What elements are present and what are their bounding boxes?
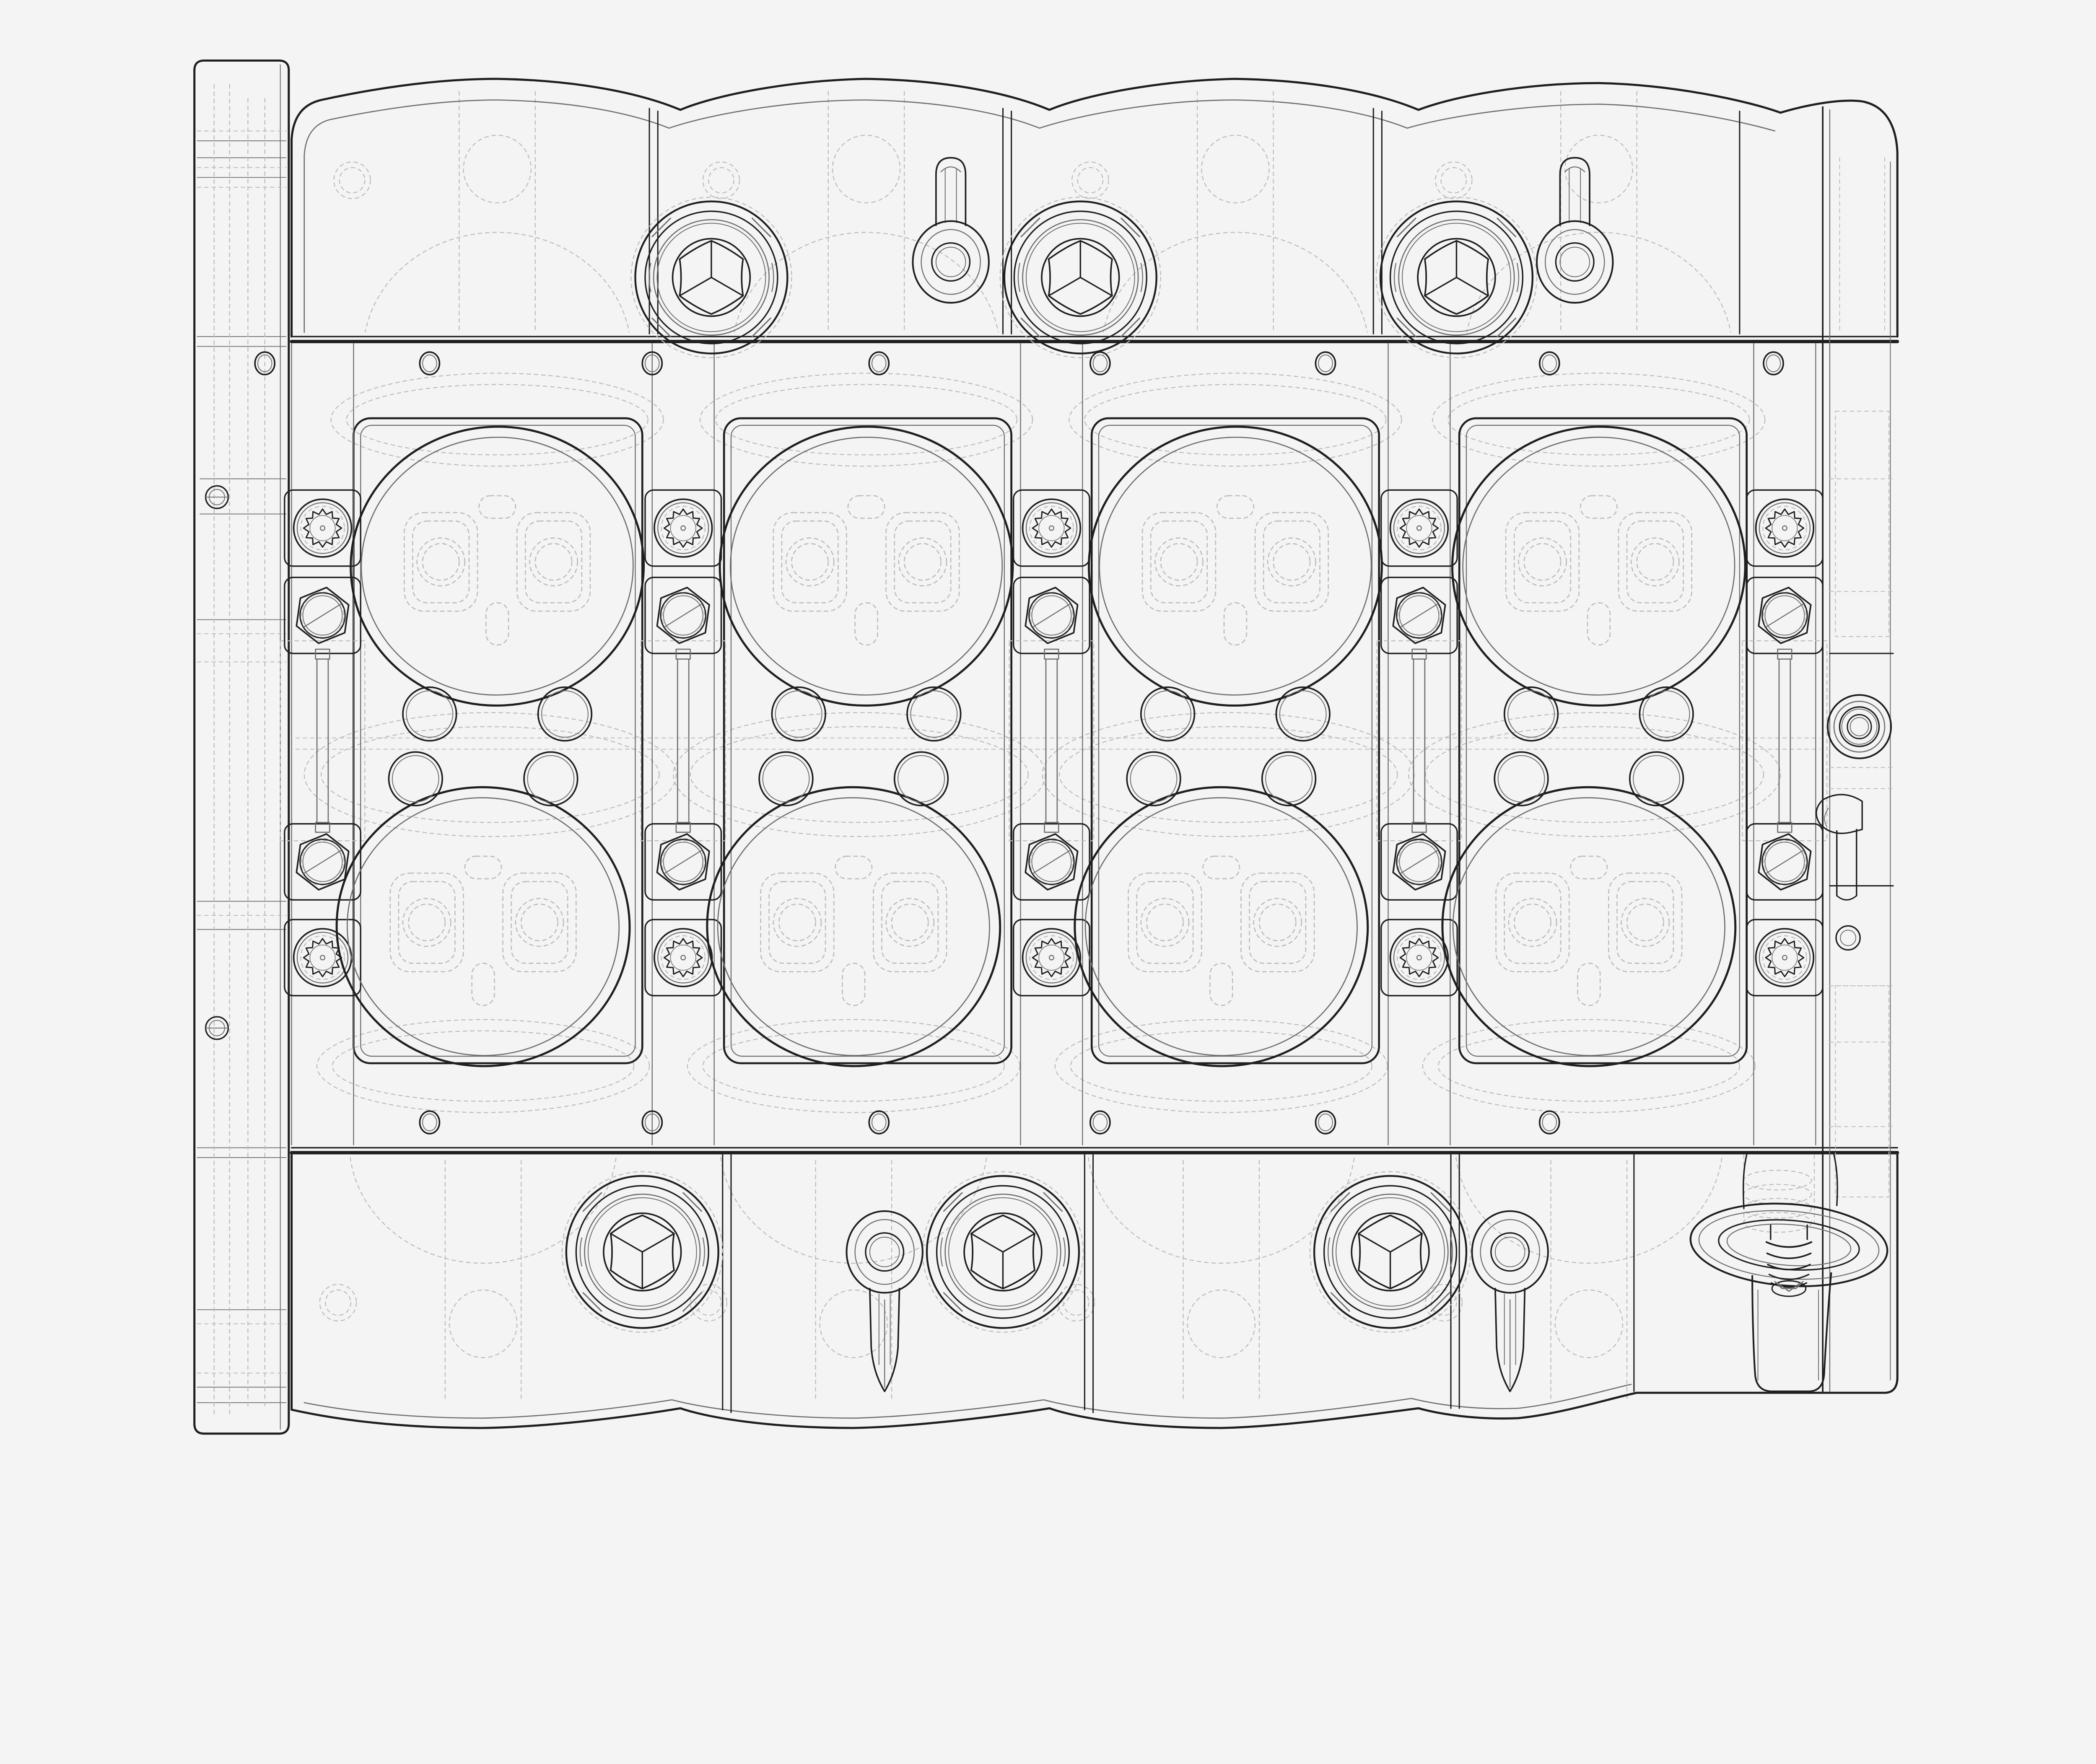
bearing-panel-inner [1099, 425, 1372, 1056]
bearing-bolt-12pt [654, 929, 712, 987]
bearing-bolt-hex [1391, 831, 1447, 893]
bearing-panel [1459, 418, 1746, 1063]
deck-bolt-hole [869, 1111, 889, 1134]
oil-passage-ghost [320, 1285, 356, 1321]
bearing-rail [1743, 344, 1827, 1145]
dowel-pin [846, 1211, 922, 1391]
bearing-bolt-12pt [1390, 499, 1448, 557]
bearing-bolt-hex [1023, 584, 1079, 647]
bore-scallop [1276, 687, 1330, 741]
dowel-pin [913, 158, 988, 303]
cylinder-ghost-top [732, 91, 1000, 471]
crank-journal-ghost [1506, 496, 1692, 645]
bearing-panel-outline [724, 418, 1011, 1063]
core-plug-boss [1828, 695, 1891, 758]
front-plate-lines [197, 141, 286, 1403]
cylinder-bore [1082, 419, 1389, 713]
side-port [1836, 926, 1860, 950]
top-edge-outer [292, 79, 1898, 337]
deck-bolt-hole [420, 352, 439, 375]
bearing-bolt-hex [655, 831, 711, 893]
bearing-bolt-12pt [1023, 499, 1081, 557]
bore-scallop [759, 752, 813, 806]
rail-slot [1779, 659, 1790, 823]
cylinder-ghost-bottom [1455, 1024, 1722, 1400]
bearing-panel-outline [1459, 418, 1746, 1063]
crank-journal-ghost [390, 856, 576, 1005]
cylinder-ghost-top [1102, 91, 1369, 471]
deck-bolt-hole [1315, 352, 1335, 375]
bore-scallop [1505, 687, 1558, 741]
bottom-edge-inner [304, 1384, 1631, 1418]
hex-socket-plug [631, 197, 791, 357]
bearing-bolt-12pt [1756, 499, 1814, 557]
bearing-panel [1092, 418, 1379, 1063]
rail-edge [1020, 344, 1082, 1145]
deck-bolt-hole [1540, 352, 1559, 375]
rail-slot [677, 659, 689, 823]
bearing-panel-inner [1466, 425, 1740, 1056]
bearing-structure-layer [280, 344, 1827, 1145]
rail-slot [317, 659, 328, 823]
crank-journal-ghost [1142, 496, 1328, 645]
end-plate-hole [206, 486, 228, 508]
bearing-panel-outline [1092, 418, 1379, 1063]
bearing-bolt-hex [1756, 584, 1813, 647]
bolt-boss-frame [645, 490, 721, 566]
rear-cap-ghost [1830, 158, 1893, 1197]
bolt-boss-frame [1747, 920, 1823, 995]
deck-bolt-hole [420, 1111, 439, 1134]
cylinder-bore [344, 419, 651, 713]
rail-edge [1388, 344, 1450, 1145]
hex-socket-plug [562, 1172, 723, 1332]
dowel-pin [1472, 1211, 1548, 1391]
crankcase-lens-ghost [1043, 712, 1414, 837]
bore-scallop [389, 752, 442, 806]
oil-drain-plug [1688, 1155, 1890, 1391]
bearing-cap-ghost [280, 641, 365, 841]
engine-block-technical-drawing [0, 0, 2096, 1482]
bearing-bolt-hex [295, 584, 351, 647]
bottom-deck-dividers [723, 1155, 1634, 1412]
bearing-cap-ghost [1377, 641, 1462, 841]
bearing-bolt-hex [295, 831, 351, 893]
crank-journal-ghost [1496, 856, 1682, 1005]
bore-lens-ghost [1069, 373, 1401, 466]
bearing-bolt-12pt [294, 499, 352, 557]
oil-passage-ghost [1058, 1285, 1095, 1321]
hex-socket-plug [1310, 1172, 1471, 1332]
bearing-bolt-hex [1023, 831, 1079, 893]
bearing-cap-ghost [641, 641, 726, 841]
bearing-rail [280, 344, 365, 1145]
bolt-boss-frame [285, 490, 361, 566]
crank-journal-ghost [773, 496, 960, 645]
bolt-boss-frame [645, 920, 721, 995]
rear-cap-divisions [1830, 653, 1893, 886]
bolt-boss-frame [1014, 490, 1090, 566]
crank-journal-ghost [761, 856, 947, 1005]
hex-socket-plug [1376, 197, 1537, 357]
front-plate-ghost-verticals [214, 85, 265, 1415]
rail-edge [1754, 344, 1816, 1145]
bore-lens-ghost [331, 373, 664, 466]
rail-slot [1046, 659, 1057, 823]
bearing-bolt-12pt [1390, 929, 1448, 987]
crank-journal-ghost [404, 496, 590, 645]
deck-bolt-hole [869, 352, 889, 375]
deck-bolt-hole [1090, 1111, 1110, 1134]
bore-lens-ghost [700, 373, 1032, 466]
front-plate-ghost-lines [197, 131, 286, 1373]
bearing-panel-inner [361, 425, 635, 1056]
front-plate-outline [195, 60, 289, 1433]
rail-edge [292, 344, 354, 1145]
cylinder-bore [1435, 780, 1743, 1074]
deck-bolt-hole [1764, 352, 1783, 375]
bore-scallop [524, 752, 578, 806]
bearing-bolt-12pt [654, 499, 712, 557]
cylinder-ghost-bottom [1087, 1024, 1355, 1400]
cylinder-bore [713, 419, 1020, 713]
dowel-pin [1537, 158, 1613, 303]
bolt-boss-frame [1381, 490, 1457, 566]
oil-passage-ghost [703, 162, 739, 198]
bearing-bolt-12pt [294, 929, 352, 987]
bore-scallop [1494, 752, 1548, 806]
bore-scallop [895, 752, 948, 806]
crankcase-lens-ghost [673, 712, 1045, 837]
oil-passage-ghost [1072, 162, 1108, 198]
top-edge-inner [304, 100, 1775, 332]
face-ghost-centerlines [296, 738, 1820, 749]
cylinder-bore [1445, 419, 1752, 713]
deck-bolt-hole [1315, 1111, 1335, 1134]
bore-scallop [1639, 687, 1693, 741]
bearing-cap-ghost [1009, 641, 1094, 841]
bore-scallop [1127, 752, 1180, 806]
crankcase-lens-ghost [1409, 712, 1780, 837]
bottom-edge-outer [292, 1152, 1898, 1428]
cylinder-ghost-top [363, 91, 631, 471]
cylinder-bore [700, 780, 1007, 1074]
hex-socket-plug [1000, 197, 1161, 357]
bore-lens-ghost [1432, 373, 1765, 466]
crank-journal-ghost [1128, 856, 1315, 1005]
bearing-bolt-12pt [1756, 929, 1814, 987]
background [0, 0, 2096, 1482]
bearing-rail [1009, 344, 1094, 1145]
bearing-bolt-hex [1756, 831, 1813, 893]
bearing-cap-ghost [1743, 641, 1827, 841]
end-plate-hole [206, 1017, 228, 1039]
bearing-panel [724, 418, 1011, 1063]
rail-edge [652, 344, 714, 1145]
bearing-panel [353, 418, 642, 1063]
bore-scallop [1630, 752, 1684, 806]
oil-passage-ghost [334, 162, 370, 198]
bearing-bolt-12pt [1023, 929, 1081, 987]
crankcase-lens-ghost [304, 712, 676, 837]
bearing-bolt-hex [1391, 584, 1447, 647]
bearing-bolt-hex [655, 584, 711, 647]
cylinder-ghost-bottom [720, 1024, 987, 1400]
bore-scallop [907, 687, 961, 741]
bearing-panel-outline [353, 418, 642, 1063]
deck-bolt-hole [1540, 1111, 1559, 1134]
oil-passage-ghost [1435, 162, 1472, 198]
cylinder-ghost-top-group [363, 91, 1733, 471]
rail-slot [1414, 659, 1425, 823]
bearing-rail [641, 344, 726, 1145]
bolt-boss-frame [1747, 490, 1823, 566]
bore-scallop [538, 687, 592, 741]
bore-scallop [1262, 752, 1316, 806]
bearing-panel-inner [731, 425, 1004, 1056]
